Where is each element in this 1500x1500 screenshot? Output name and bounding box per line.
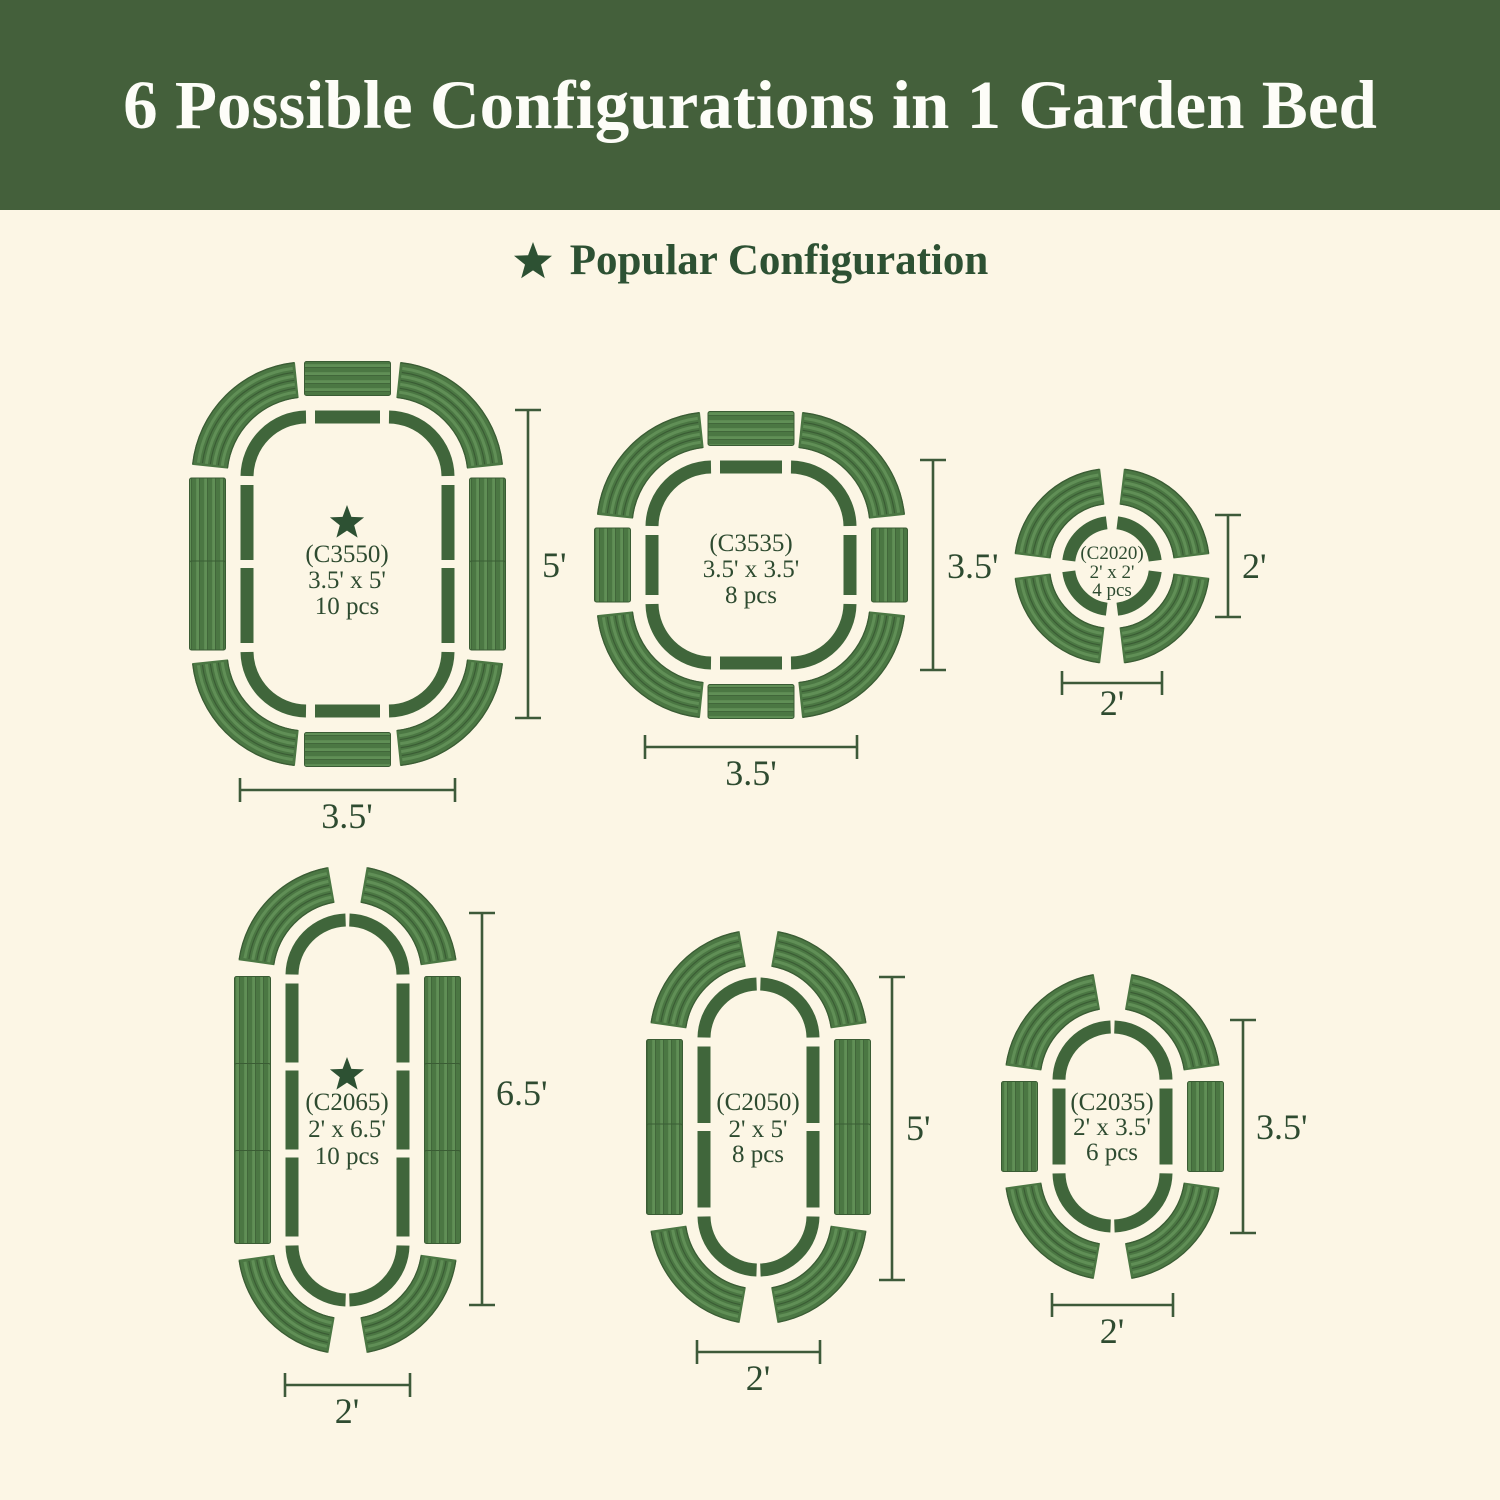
diagram-c3535: 3.5'3.5'(C3535)3.5' x 3.5'8 pcs [595,412,999,794]
pieces-label: 10 pcs [315,1143,380,1170]
bed-outline-segment [292,920,346,975]
side-panel [235,977,271,1070]
bed-outline-segment [791,604,850,663]
bed-outline-segment [1114,1173,1166,1226]
popular-star-icon [330,1057,364,1090]
diagram-c2050: 5'2'(C2050)2' x 5'8 pcs [647,932,931,1398]
bed-outline-segment [704,984,757,1038]
corner-panel [239,1256,334,1353]
model-label: (C2050) [716,1089,799,1116]
width-dimension: 2' [1062,671,1162,723]
corner-panel [1015,574,1104,663]
side-panel [647,1040,683,1131]
corner-panel [361,1256,456,1353]
diagram-c2035: 3.5'2'(C2035)2' x 3.5'6 pcs [1002,975,1308,1351]
width-dimension-label: 3.5' [321,796,373,836]
diagram-c2020: 2'2'(C2020)2' x 2'4 pcs [1015,469,1266,723]
model-label: (C3535) [709,530,792,557]
side-panel [708,412,794,446]
height-dimension-label: 2' [1242,546,1267,586]
width-dimension-label: 2' [1100,683,1125,723]
width-dimension-label: 2' [746,1358,771,1398]
size-label: 2' x 3.5' [1073,1114,1151,1141]
side-panel [1002,1082,1038,1172]
side-panel [835,1040,871,1131]
bed-outline-segment [1059,1027,1111,1080]
height-dimension: 5' [879,977,931,1280]
bed-outline-segment [704,1217,757,1271]
side-panel [305,733,391,767]
size-label: 2' x 5' [728,1116,787,1143]
corner-panel [1006,975,1099,1070]
width-dimension-label: 2' [335,1391,360,1431]
height-dimension: 3.5' [920,460,999,670]
corner-panel [772,932,866,1028]
pieces-label: 6 pcs [1086,1139,1138,1166]
side-panel [647,1124,683,1215]
side-panel [190,561,226,650]
bed-outline-segment [1114,1027,1166,1080]
model-label: (C2020) [1080,543,1143,564]
diagram-c2065: 6.5'2'(C2065)2' x 6.5'10 pcs [235,868,548,1431]
height-dimension-label: 3.5' [947,546,999,586]
height-dimension: 2' [1215,515,1267,617]
size-label: 2' x 6.5' [308,1116,386,1143]
bed-outline-segment [292,1246,346,1301]
side-panel [835,1124,871,1215]
model-label: (C2035) [1070,1089,1153,1116]
side-panel [872,528,908,602]
corner-panel [1126,975,1219,1070]
side-panel [235,1151,271,1244]
bed-outline-segment [760,1217,813,1271]
side-panel [425,977,461,1070]
side-panel [470,561,506,650]
pieces-label: 10 pcs [315,593,380,620]
bed-outline-segment [389,652,448,711]
width-dimension-label: 2' [1100,1311,1125,1351]
corner-panel [651,1226,745,1322]
bed-outline-segment [760,984,813,1038]
bed-outline-segment [247,417,306,476]
height-dimension-label: 5' [906,1108,931,1148]
diagram-c3550: 5'3.5'(C3550)3.5' x 5'10 pcs [190,362,567,837]
width-dimension-label: 3.5' [725,753,777,793]
side-panel [425,1064,461,1157]
bed-outline-segment [247,652,306,711]
width-dimension: 3.5' [645,735,857,793]
side-panel [235,1064,271,1157]
side-panel [470,478,506,567]
width-dimension: 3.5' [240,778,455,836]
height-dimension: 6.5' [469,913,548,1305]
size-label: 3.5' x 5' [308,567,386,594]
height-dimension-label: 3.5' [1256,1107,1308,1147]
size-label: 3.5' x 3.5' [703,556,800,583]
model-label: (C2065) [305,1089,388,1116]
bed-outline-segment [791,467,850,526]
bed-outline-segment [1059,1173,1111,1226]
height-dimension-label: 6.5' [496,1073,548,1113]
height-dimension: 3.5' [1230,1020,1308,1233]
pieces-label: 4 pcs [1092,580,1132,601]
pieces-label: 8 pcs [725,582,777,609]
width-dimension: 2' [697,1340,820,1398]
configurations-canvas: 5'3.5'(C3550)3.5' x 5'10 pcs3.5'3.5'(C35… [0,0,1500,1500]
bed-outline-segment [389,417,448,476]
corner-panel [772,1226,866,1322]
width-dimension: 2' [285,1373,410,1431]
bed-outline-segment [652,467,711,526]
corner-panel [1006,1183,1099,1278]
side-panel [595,528,631,602]
corner-panel [361,868,456,965]
bed-outline-segment [349,920,403,975]
corner-panel [1126,1183,1219,1278]
corner-panel [1120,574,1209,663]
side-panel [190,478,226,567]
height-dimension: 5' [515,410,567,718]
side-panel [305,362,391,396]
bed-outline-segment [652,604,711,663]
side-panel [708,685,794,719]
popular-star-icon [330,505,364,538]
side-panel [1188,1082,1224,1172]
height-dimension-label: 5' [542,545,567,585]
bed-outline-segment [349,1246,403,1301]
width-dimension: 2' [1052,1293,1173,1351]
side-panel [425,1151,461,1244]
corner-panel [651,932,745,1028]
model-label: (C3550) [305,541,388,568]
corner-panel [239,868,334,965]
pieces-label: 8 pcs [732,1141,784,1168]
